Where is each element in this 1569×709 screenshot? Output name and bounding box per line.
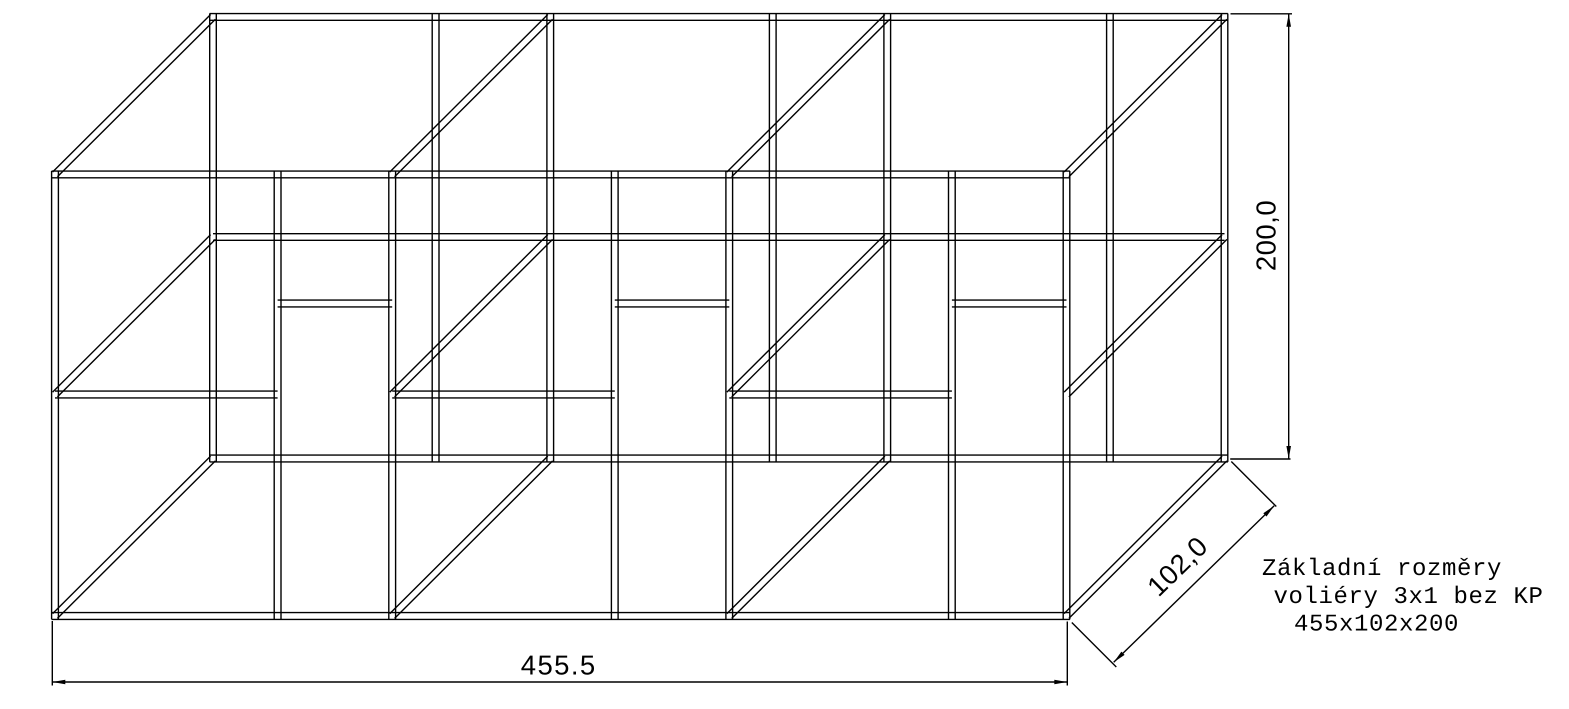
svg-text:Základní rozměry: Základní rozměry bbox=[1262, 556, 1502, 583]
svg-text:455.5: 455.5 bbox=[521, 650, 597, 681]
svg-text:200,0: 200,0 bbox=[1251, 200, 1282, 271]
svg-text:102,0: 102,0 bbox=[1141, 530, 1214, 602]
svg-text:voliéry 3x1 bez KP: voliéry 3x1 bez KP bbox=[1274, 584, 1544, 611]
svg-text:455x102x200: 455x102x200 bbox=[1294, 612, 1459, 639]
